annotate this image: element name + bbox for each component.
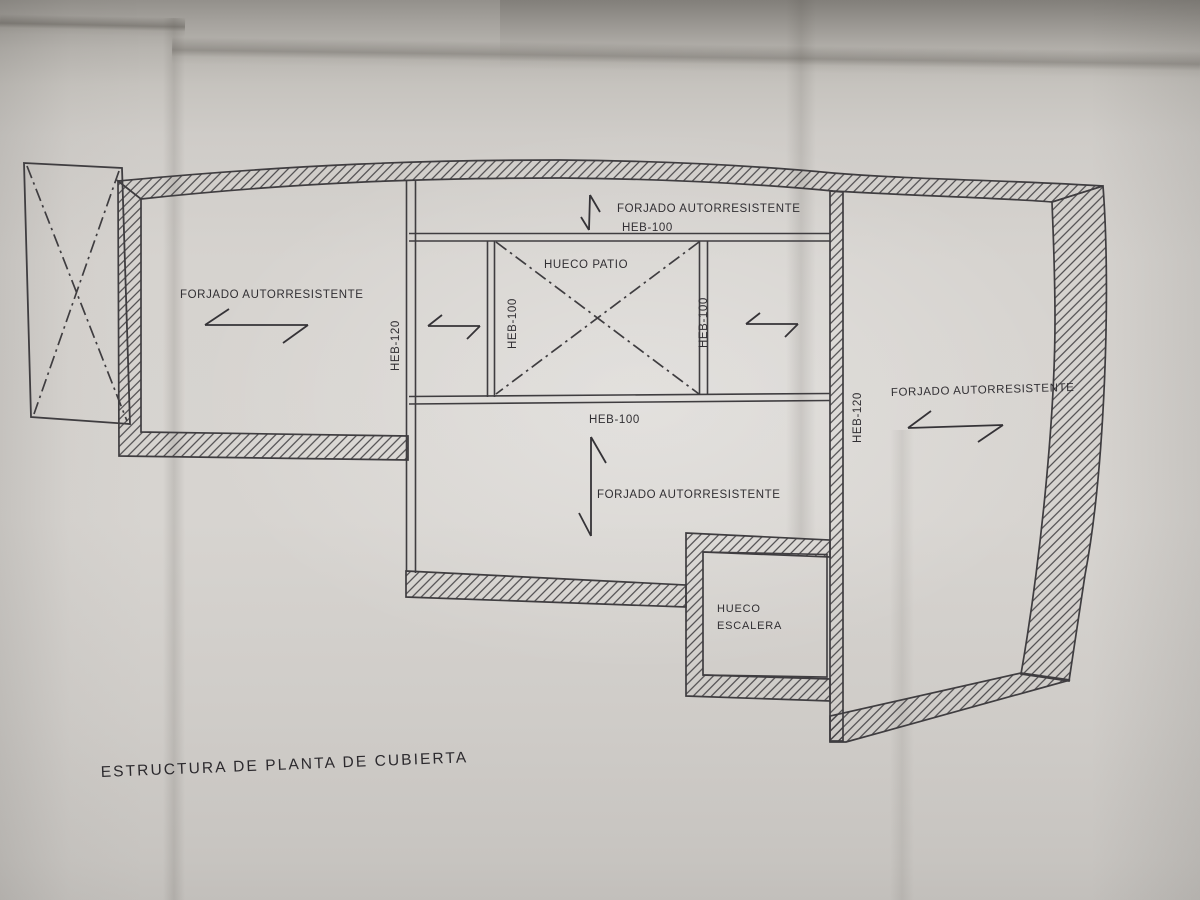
beam-middle-line (409, 401, 830, 405)
span-direction-arrow (746, 313, 798, 337)
wall-top (118, 160, 1103, 202)
wall-right-wing-left (830, 191, 843, 741)
span-direction-arrow (205, 309, 308, 343)
span-direction-arrow (428, 315, 480, 339)
span-direction-arrow (581, 195, 600, 230)
label-heb120-right-wing: HEB-120 (852, 392, 864, 443)
wall-right-wing-bottom (830, 673, 1070, 742)
label-heb120-column: HEB-120 (390, 320, 402, 371)
wall-lower-middle-bottom (406, 571, 686, 607)
label-forjado-right-wing: FORJADO AUTORRESISTENTE (891, 382, 1075, 399)
beam-middle-line (409, 394, 830, 397)
page-title: ESTRUCTURA DE PLANTA DE CUBIERTA (100, 749, 468, 781)
label-forjado-left-wing: FORJADO AUTORRESISTENTE (180, 289, 364, 301)
label-heb100-patio-right: HEB-100 (698, 297, 710, 348)
plan-walls (118, 160, 1106, 742)
scanned-plan-photo: { "plan": { "title": "ESTRUCTURA DE PLAN… (0, 0, 1200, 900)
label-heb100-middle-beam: HEB-100 (589, 414, 640, 426)
label-hueco-stair-line2: ESCALERA (717, 620, 782, 632)
left-crossed-panel (24, 163, 130, 424)
left-crossed-panel-cross (27, 166, 127, 421)
label-hueco-stair-line1: HUECO (717, 603, 761, 615)
label-heb100-patio-left: HEB-100 (507, 298, 519, 349)
span-direction-arrow (908, 411, 1003, 442)
roof-structure-plan-drawing: FORJADO AUTORRESISTENTE FORJADO AUTORRES… (0, 0, 1200, 900)
label-forjado-top-strip: FORJADO AUTORRESISTENTE (617, 203, 801, 215)
label-heb100-top-strip: HEB-100 (622, 222, 673, 234)
span-arrows (205, 195, 1003, 536)
label-forjado-lower-middle: FORJADO AUTORRESISTENTE (597, 489, 781, 501)
span-direction-arrow (579, 437, 606, 536)
wall-right-wing-right (1021, 186, 1106, 681)
label-hueco-patio: HUECO PATIO (544, 259, 628, 271)
plan-beam-lines (407, 181, 831, 573)
wall-left-wing (118, 181, 408, 460)
